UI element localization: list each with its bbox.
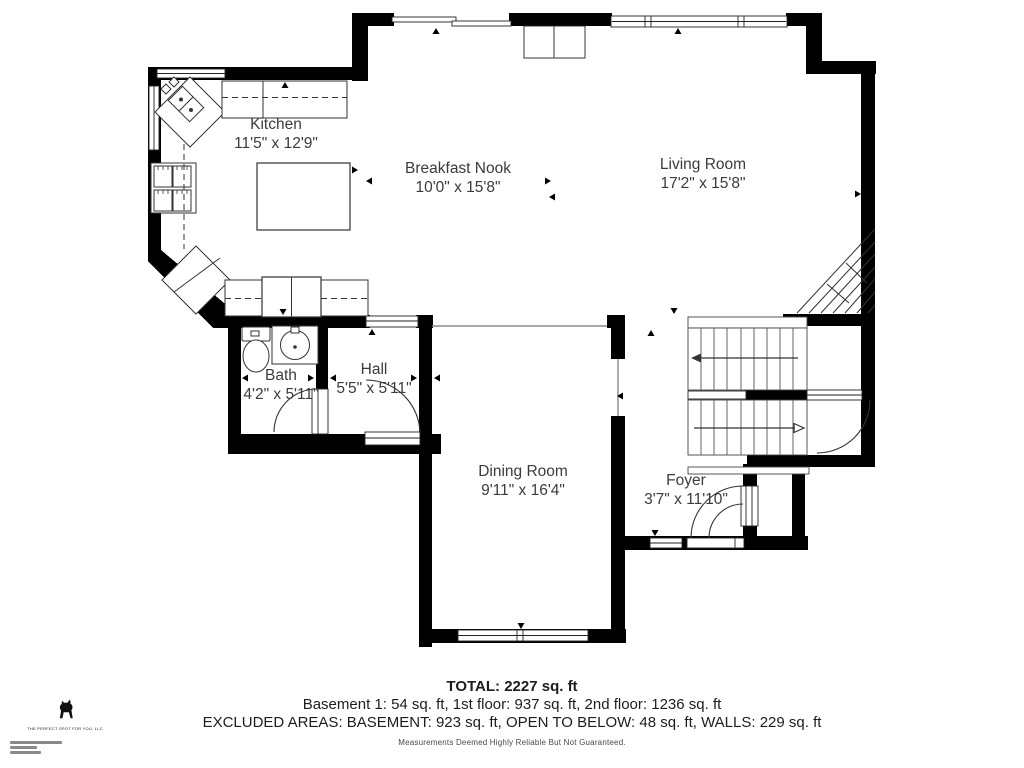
disclaimer-text: Measurements Deemed Highly Reliable But … [0, 738, 1024, 747]
stove [151, 163, 196, 213]
kitchen-island [257, 163, 350, 230]
kitchen-window-left [149, 86, 159, 150]
kitchen-peninsula [225, 277, 368, 317]
hall-top-opening [366, 316, 418, 327]
fine-print-line [10, 751, 41, 754]
room-name: Hall [336, 361, 411, 380]
room-dims: 11'5" x 12'9" [234, 135, 318, 154]
room-label-foyer: Foyer 3'7" x 11'10" [644, 472, 728, 509]
room-name: Bath [243, 367, 318, 386]
fireplace [524, 26, 585, 58]
floor-areas: Basement 1: 54 sq. ft, 1st floor: 937 sq… [0, 696, 1024, 714]
room-label-hall: Hall 5'5" x 5'11" [336, 361, 411, 398]
hall-door-sill [365, 432, 420, 445]
room-label-bath: Bath 4'2" x 5'11" [243, 367, 318, 404]
room-label-kitchen: Kitchen 11'5" x 12'9" [234, 116, 318, 153]
kitchen-fixtures [151, 77, 368, 317]
floor-plan-drawing [0, 0, 1024, 768]
cased-openings [432, 326, 618, 416]
room-name: Foyer [644, 472, 728, 491]
room-dims: 4'2" x 5'11" [243, 386, 318, 405]
room-name: Kitchen [234, 116, 318, 135]
logo-caption: THE PERFECT SPOT FOR YOU, LLC [22, 726, 108, 731]
room-dims: 9'11" x 16'4" [478, 482, 568, 501]
room-name: Dining Room [478, 463, 568, 482]
sink-icon [272, 326, 318, 364]
room-dims: 17'2" x 15'8" [660, 175, 746, 194]
total-area: TOTAL: 2227 sq. ft [0, 678, 1024, 696]
corner-sink [155, 77, 225, 147]
room-name: Living Room [660, 156, 746, 175]
dog-logo-icon [53, 696, 77, 720]
room-name: Breakfast Nook [405, 160, 511, 179]
toilet-icon [242, 327, 270, 372]
living-room-window [611, 16, 787, 27]
fine-print-line [10, 746, 37, 749]
front-door-arc-inner [709, 504, 743, 538]
room-label-living-room: Living Room 17'2" x 15'8" [660, 156, 746, 193]
dining-window [458, 630, 588, 641]
company-logo: THE PERFECT SPOT FOR YOU, LLC [22, 696, 108, 731]
front-door-threshold [687, 538, 744, 548]
bath-fixtures [242, 326, 318, 372]
room-label-dining-room: Dining Room 9'11" x 16'4" [478, 463, 568, 500]
room-label-breakfast-nook: Breakfast Nook 10'0" x 15'8" [405, 160, 511, 197]
sliding-door [392, 17, 511, 26]
room-dims: 3'7" x 11'10" [644, 491, 728, 510]
room-dims: 5'5" x 5'11" [336, 380, 411, 399]
fine-print-line [10, 741, 62, 744]
front-door-frame [741, 486, 758, 526]
stair-half-wall [688, 391, 746, 399]
floor-plan-page: Kitchen 11'5" x 12'9" Breakfast Nook 10'… [0, 0, 1024, 768]
foyer-window [650, 538, 682, 548]
stair-closet-door-frame [807, 390, 862, 400]
excluded-areas: EXCLUDED AREAS: BASEMENT: 923 sq. ft, OP… [0, 714, 1024, 732]
fine-print [10, 741, 62, 756]
room-dims: 10'0" x 15'8" [405, 179, 511, 198]
area-summary: TOTAL: 2227 sq. ft Basement 1: 54 sq. ft… [0, 678, 1024, 747]
kitchen-window-top [157, 69, 225, 78]
